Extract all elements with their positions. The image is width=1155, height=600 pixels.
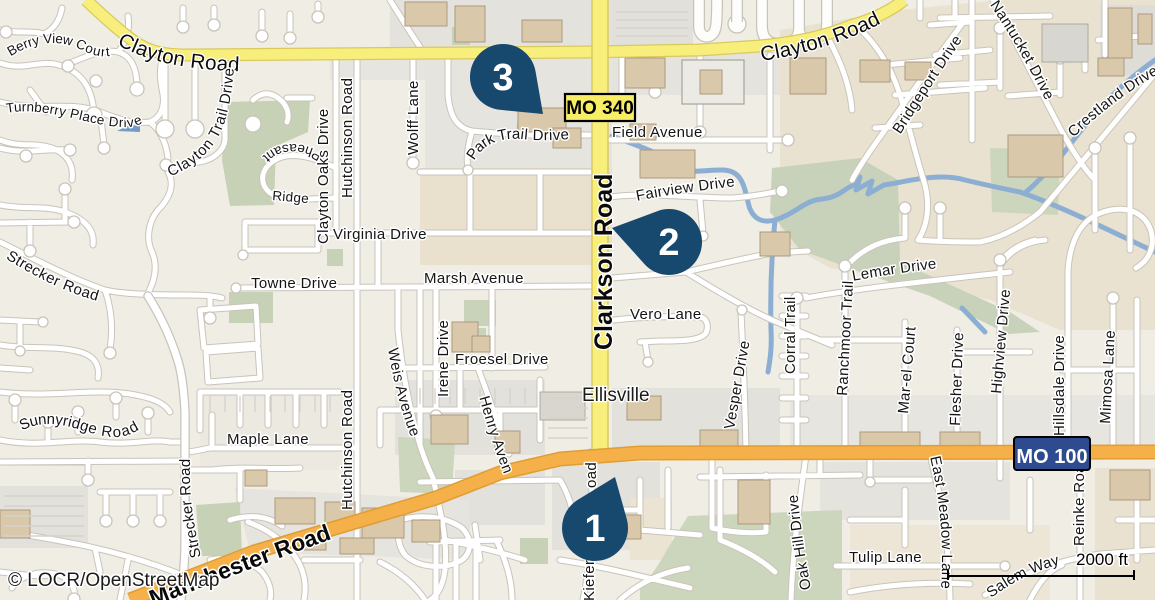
- svg-text:oad: oad: [583, 462, 600, 488]
- svg-text:2: 2: [658, 222, 679, 264]
- svg-text:3: 3: [492, 57, 513, 99]
- svg-text:Field Avenue: Field Avenue: [612, 124, 703, 141]
- svg-text:Corral Trail: Corral Trail: [782, 296, 799, 374]
- svg-text:Hillsdale Drive: Hillsdale Drive: [1051, 335, 1068, 436]
- svg-text:Maple Lane: Maple Lane: [227, 431, 309, 448]
- svg-text:Flesher Drive: Flesher Drive: [947, 332, 967, 426]
- svg-text:Tulip Lane: Tulip Lane: [849, 549, 922, 566]
- svg-text:© LOCR/OpenStreetMap: © LOCR/OpenStreetMap: [8, 570, 219, 591]
- svg-text:Froesel Drive: Froesel Drive: [455, 351, 549, 368]
- svg-text:Ridge: Ridge: [272, 188, 310, 206]
- svg-text:Marsh Avenue: Marsh Avenue: [424, 270, 524, 287]
- svg-text:Virginia Drive: Virginia Drive: [333, 226, 427, 243]
- svg-text:Clayton Oaks Drive: Clayton Oaks Drive: [315, 108, 332, 244]
- svg-text:Towne Drive: Towne Drive: [251, 275, 337, 292]
- svg-text:MO 340: MO 340: [566, 98, 634, 119]
- svg-text:1: 1: [584, 508, 605, 550]
- svg-text:MO 100: MO 100: [1016, 446, 1087, 468]
- svg-text:Vero Lane: Vero Lane: [630, 306, 702, 323]
- svg-text:2000 ft: 2000 ft: [1076, 550, 1128, 569]
- svg-text:Hutchinson Road: Hutchinson Road: [339, 390, 356, 510]
- svg-text:Irene Drive: Irene Drive: [435, 320, 452, 397]
- svg-text:Wolff Lane: Wolff Lane: [405, 80, 422, 155]
- svg-text:Ellisville: Ellisville: [582, 385, 650, 406]
- svg-text:Clarkson Road: Clarkson Road: [590, 174, 618, 350]
- svg-text:Hutchinson Road: Hutchinson Road: [339, 78, 356, 198]
